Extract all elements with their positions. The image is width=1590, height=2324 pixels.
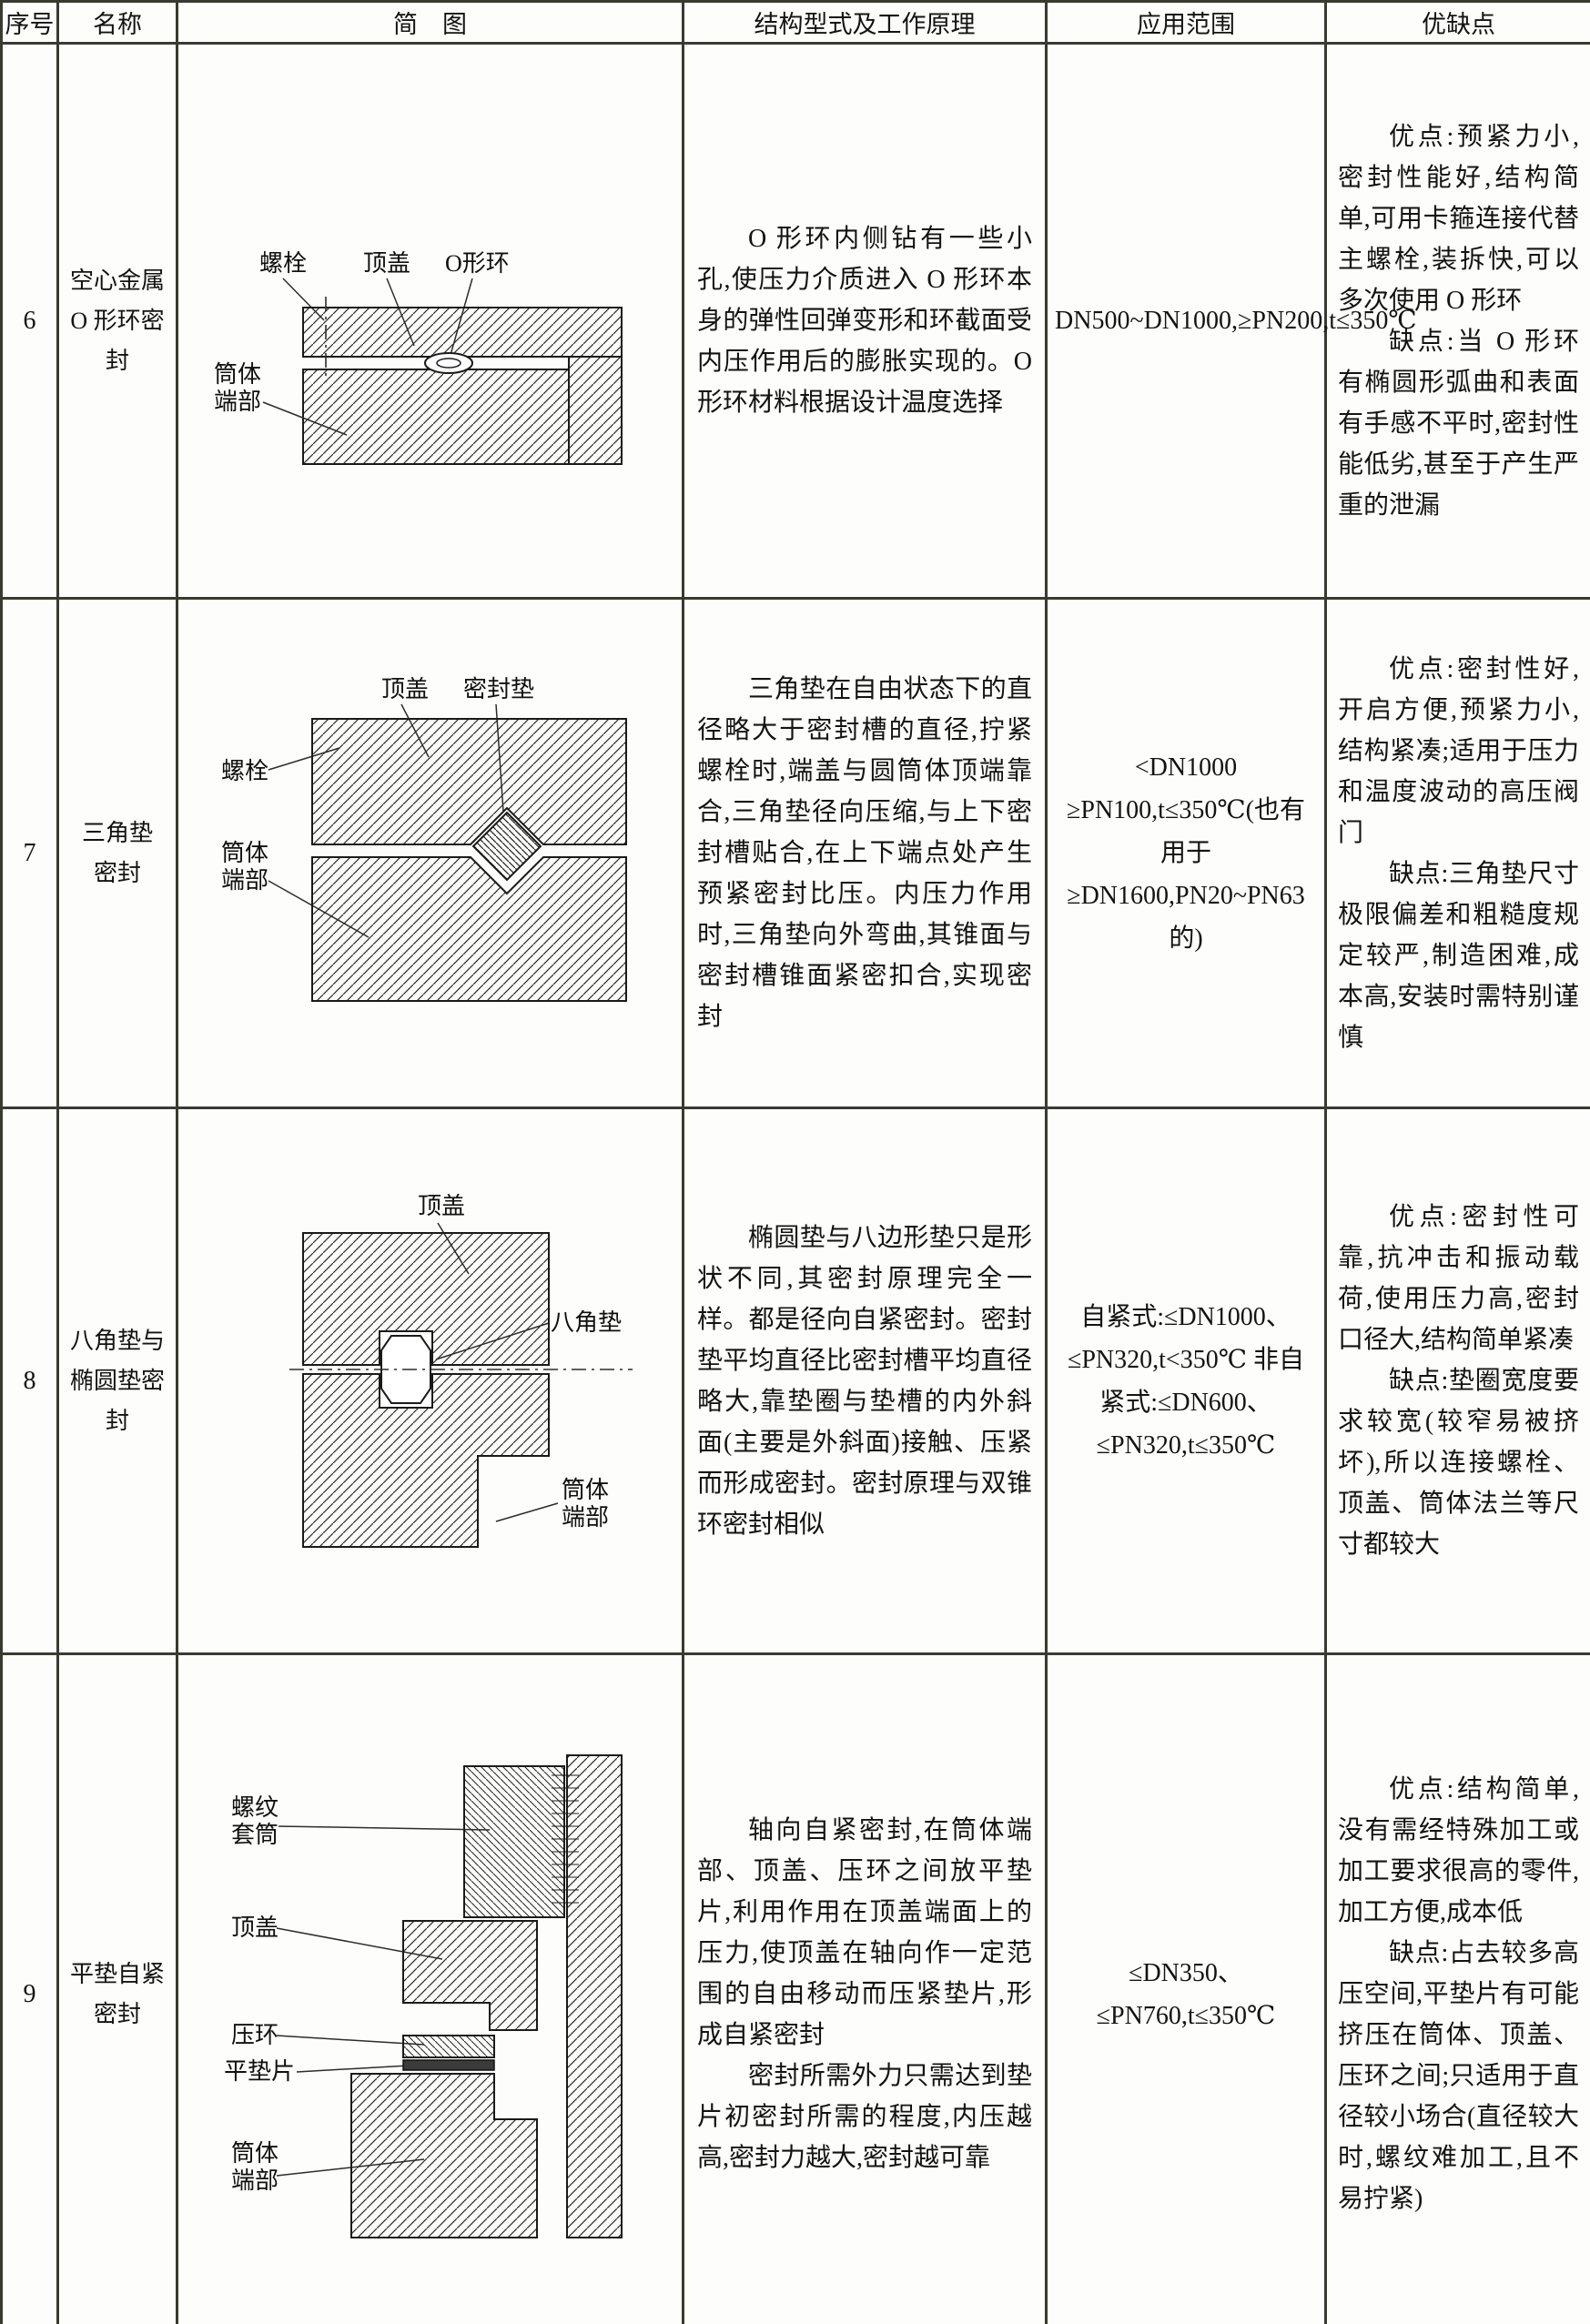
cover-section	[303, 308, 622, 357]
row-number: 6	[2, 44, 58, 599]
table-row: 6 空心金属 O 形环密封 螺栓 顶盖 O形环	[2, 44, 1590, 599]
principle-paragraph: 轴向自紧密封,在筒体端部、顶盖、压环之间放平垫片,利用作用在顶盖端面上的压力,使…	[697, 1810, 1032, 2056]
oring-seal-diagram: 螺栓 顶盖 O形环 筒体 端部	[203, 164, 658, 473]
row-number: 8	[2, 1108, 58, 1654]
pros-cons-cell: 优点:结构简单,没有需经特殊加工或加工要求很高的零件,加工方便,成本低 缺点:占…	[1326, 1654, 1590, 2324]
cylinder-section	[303, 1374, 549, 1547]
principle-cell: 三角垫在自由状态下的直径略大于密封槽的直径,拧紧螺栓时,端盖与圆筒体顶端靠合,三…	[684, 599, 1047, 1108]
label-cylinder-2: 端部	[231, 2167, 279, 2194]
table-row: 8 八角垫与 椭圆垫密封 顶盖 八角垫 筒体 端部	[2, 1108, 1590, 1654]
pros-paragraph: 优点:密封性可靠,抗冲击和振动载荷,使用压力高,密封口径大,结构简单紧凑	[1338, 1197, 1579, 1360]
oring-cross-section	[425, 353, 472, 373]
cons-paragraph: 缺点:当 O 形环有椭圆形弧曲和表面有手感不平时,密封性能低劣,甚至于产生严重的…	[1338, 321, 1579, 526]
principle-cell: 椭圆垫与八边形垫只是形状不同,其密封原理完全一样。都是径向自紧密封。密封垫平均直…	[684, 1108, 1047, 1654]
principle-cell: 轴向自紧密封,在筒体端部、顶盖、压环之间放平垫片,利用作用在顶盖端面上的压力,使…	[684, 1654, 1047, 2324]
label-cylinder-2: 端部	[221, 867, 268, 894]
row-number: 7	[2, 599, 58, 1108]
table-row: 7 三角垫 密封 顶盖 密封垫 螺栓 筒体 端部	[2, 599, 1590, 1108]
cylinder-section	[303, 369, 569, 464]
cons-paragraph: 缺点:占去较多高压空间,平垫片有可能挤压在筒体、顶盖、压环之间;只适用于直径较小…	[1338, 1933, 1579, 2219]
header-pros-cons: 优缺点	[1326, 2, 1590, 44]
header-no: 序号	[2, 2, 58, 44]
seal-name: 空心金属 O 形环密封	[58, 44, 177, 599]
cover-wall-section	[569, 357, 622, 464]
row-number: 9	[2, 1654, 58, 2324]
principle-paragraph: 三角垫在自由状态下的直径略大于密封槽的直径,拧紧螺栓时,端盖与圆筒体顶端靠合,三…	[697, 669, 1032, 1037]
label-cylinder-1: 筒体	[221, 840, 268, 866]
cylinder-section	[351, 2074, 537, 2238]
outer-wall-section	[567, 1755, 622, 2238]
diagram-cell: 螺栓 顶盖 O形环 筒体 端部	[177, 44, 684, 599]
pressure-ring-section	[403, 2036, 494, 2057]
pros-paragraph: 优点:密封性好,开启方便,预紧力小,结构紧凑;适用于压力和温度波动的高压阀门	[1338, 649, 1579, 854]
application-range: <DN1000 ≥PN100,t≤350℃(也有用于≥DN1600,PN20~P…	[1047, 599, 1326, 1108]
diagram-cell: 顶盖 密封垫 螺栓 筒体 端部	[177, 599, 684, 1108]
header-diagram: 简 图	[177, 2, 684, 44]
label-cover: 顶盖	[381, 676, 429, 702]
label-ring: 压环	[231, 2022, 279, 2048]
diagram-cell: 顶盖 八角垫 筒体 端部	[177, 1108, 684, 1654]
label-cylinder-2: 端部	[214, 389, 261, 415]
label-gasket: 密封垫	[463, 676, 534, 702]
triangle-gasket-diagram: 顶盖 密封垫 螺栓 筒体 端部	[203, 664, 658, 1037]
label-gasket: 平垫片	[224, 2058, 295, 2085]
pros-cons-cell: 优点:密封性可靠,抗冲击和振动载荷,使用压力高,密封口径大,结构简单紧凑 缺点:…	[1326, 1108, 1590, 1654]
label-cylinder-1: 筒体	[231, 2140, 279, 2167]
pros-paragraph: 优点:预紧力小,密封性能好,结构简单,可用卡箍连接代替主螺栓,装拆快,可以多次使…	[1338, 116, 1579, 321]
octagon-gasket-diagram: 顶盖 八角垫 筒体 端部	[203, 1183, 658, 1574]
flat-gasket-diagram: 螺纹 套筒 顶盖 压环 平垫片 筒体 端部	[217, 1728, 644, 2256]
label-oring: O形环	[445, 250, 510, 277]
header-application: 应用范围	[1047, 2, 1326, 44]
label-gasket: 八角垫	[551, 1309, 622, 1336]
diagram-cell: 螺纹 套筒 顶盖 压环 平垫片 筒体 端部	[177, 1654, 684, 2324]
flat-gasket-section	[403, 2060, 494, 2070]
table-row: 9 平垫自紧 密封 螺纹 套筒 顶盖 压环 平垫片 筒体 端部	[2, 1654, 1590, 2324]
header-principle: 结构型式及工作原理	[684, 2, 1047, 44]
label-cover: 顶盖	[418, 1193, 465, 1219]
header-row: 序号 名称 简 图 结构型式及工作原理 应用范围 优缺点	[2, 2, 1590, 44]
seal-name: 平垫自紧 密封	[58, 1654, 177, 2324]
principle-paragraph: 椭圆垫与八边形垫只是形状不同,其密封原理完全一样。都是径向自紧密封。密封垫平均直…	[697, 1218, 1032, 1545]
application-range: ≤DN350、≤PN760,t≤350℃	[1047, 1654, 1326, 2324]
label-cylinder-1: 筒体	[214, 361, 261, 388]
label-cover: 顶盖	[363, 250, 410, 277]
cover-section	[403, 1921, 537, 2030]
seal-structures-table: 序号 名称 简 图 结构型式及工作原理 应用范围 优缺点 6 空心金属 O 形环…	[0, 0, 1590, 2324]
seal-name: 八角垫与 椭圆垫密封	[58, 1108, 177, 1654]
pros-cons-cell: 优点:密封性好,开启方便,预紧力小,结构紧凑;适用于压力和温度波动的高压阀门 缺…	[1326, 599, 1590, 1108]
label-bolt: 螺栓	[259, 250, 307, 277]
principle-paragraph: 密封所需外力只需达到垫片初密封所需的程度,内压越高,密封力越大,密封越可靠	[697, 2056, 1032, 2178]
label-cylinder-2: 端部	[562, 1504, 609, 1531]
threaded-sleeve-section	[464, 1766, 564, 1917]
application-range: 自紧式:≤DN1000、≤PN320,t<350℃ 非自紧式:≤DN600、≤P…	[1047, 1108, 1326, 1654]
cylinder-section	[312, 857, 626, 1001]
scanned-document-page: 序号 名称 简 图 结构型式及工作原理 应用范围 优缺点 6 空心金属 O 形环…	[0, 0, 1590, 2324]
principle-cell: O 形环内侧钻有一些小孔,使压力介质进入 O 形环本身的弹性回弹变形和环截面受内…	[684, 44, 1047, 599]
cons-paragraph: 缺点:垫圈宽度要求较宽(较窄易被挤坏),所以连接螺栓、顶盖、筒体法兰等尺寸都较大	[1338, 1360, 1579, 1565]
label-cylinder-1: 筒体	[562, 1477, 609, 1503]
principle-paragraph: O 形环内侧钻有一些小孔,使压力介质进入 O 形环本身的弹性回弹变形和环截面受内…	[697, 218, 1032, 423]
label-cover: 顶盖	[231, 1915, 279, 1941]
header-name: 名称	[58, 2, 177, 44]
pros-paragraph: 优点:结构简单,没有需经特殊加工或加工要求很高的零件,加工方便,成本低	[1338, 1769, 1579, 1933]
seal-name: 三角垫 密封	[58, 599, 177, 1108]
label-bolt: 螺栓	[221, 758, 268, 784]
label-sleeve-2: 套筒	[231, 1822, 279, 1848]
cover-section	[312, 719, 626, 844]
cons-paragraph: 缺点:三角垫尺寸极限偏差和粗糙度规定较严,制造困难,成本高,安装时需特别谨慎	[1338, 854, 1579, 1058]
label-sleeve-1: 螺纹	[231, 1794, 279, 1821]
application-range: DN500~DN1000,≥PN200,t≤350℃	[1047, 44, 1326, 599]
